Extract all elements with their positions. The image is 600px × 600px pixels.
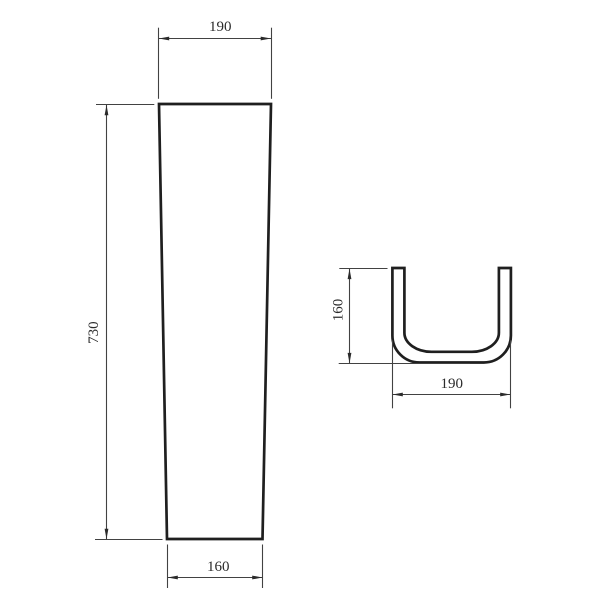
svg-text:160: 160	[207, 559, 230, 575]
svg-text:190: 190	[209, 19, 232, 35]
svg-text:160: 160	[331, 299, 347, 322]
svg-text:730: 730	[86, 321, 102, 344]
svg-text:190: 190	[441, 376, 464, 392]
